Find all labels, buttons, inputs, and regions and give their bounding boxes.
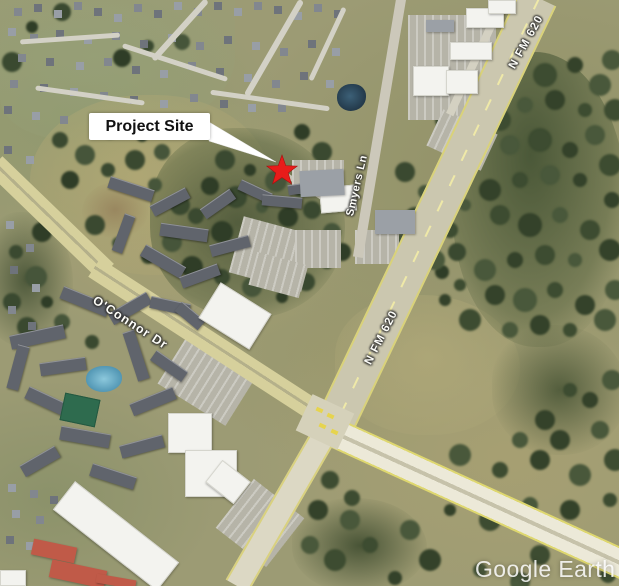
residential-houses (0, 0, 4, 4)
commercial-building (426, 20, 454, 32)
project-site-callout: Project Site (89, 113, 210, 140)
commercial-building (299, 169, 344, 197)
commercial-building (168, 413, 212, 453)
project-site-label: Project Site (105, 118, 193, 136)
satellite-map[interactable]: O'Connor Dr N FM 620 N FM 620 Smyers Ln … (0, 0, 619, 586)
forest-area (292, 498, 427, 586)
commercial-building (0, 570, 26, 586)
commercial-building (446, 70, 478, 94)
commercial-building (413, 66, 449, 96)
parking-lot (295, 230, 341, 268)
commercial-building (450, 42, 492, 60)
commercial-building (375, 210, 415, 234)
google-earth-watermark: Google Earth (475, 556, 615, 583)
commercial-building (488, 0, 516, 14)
forest-area (492, 325, 619, 455)
